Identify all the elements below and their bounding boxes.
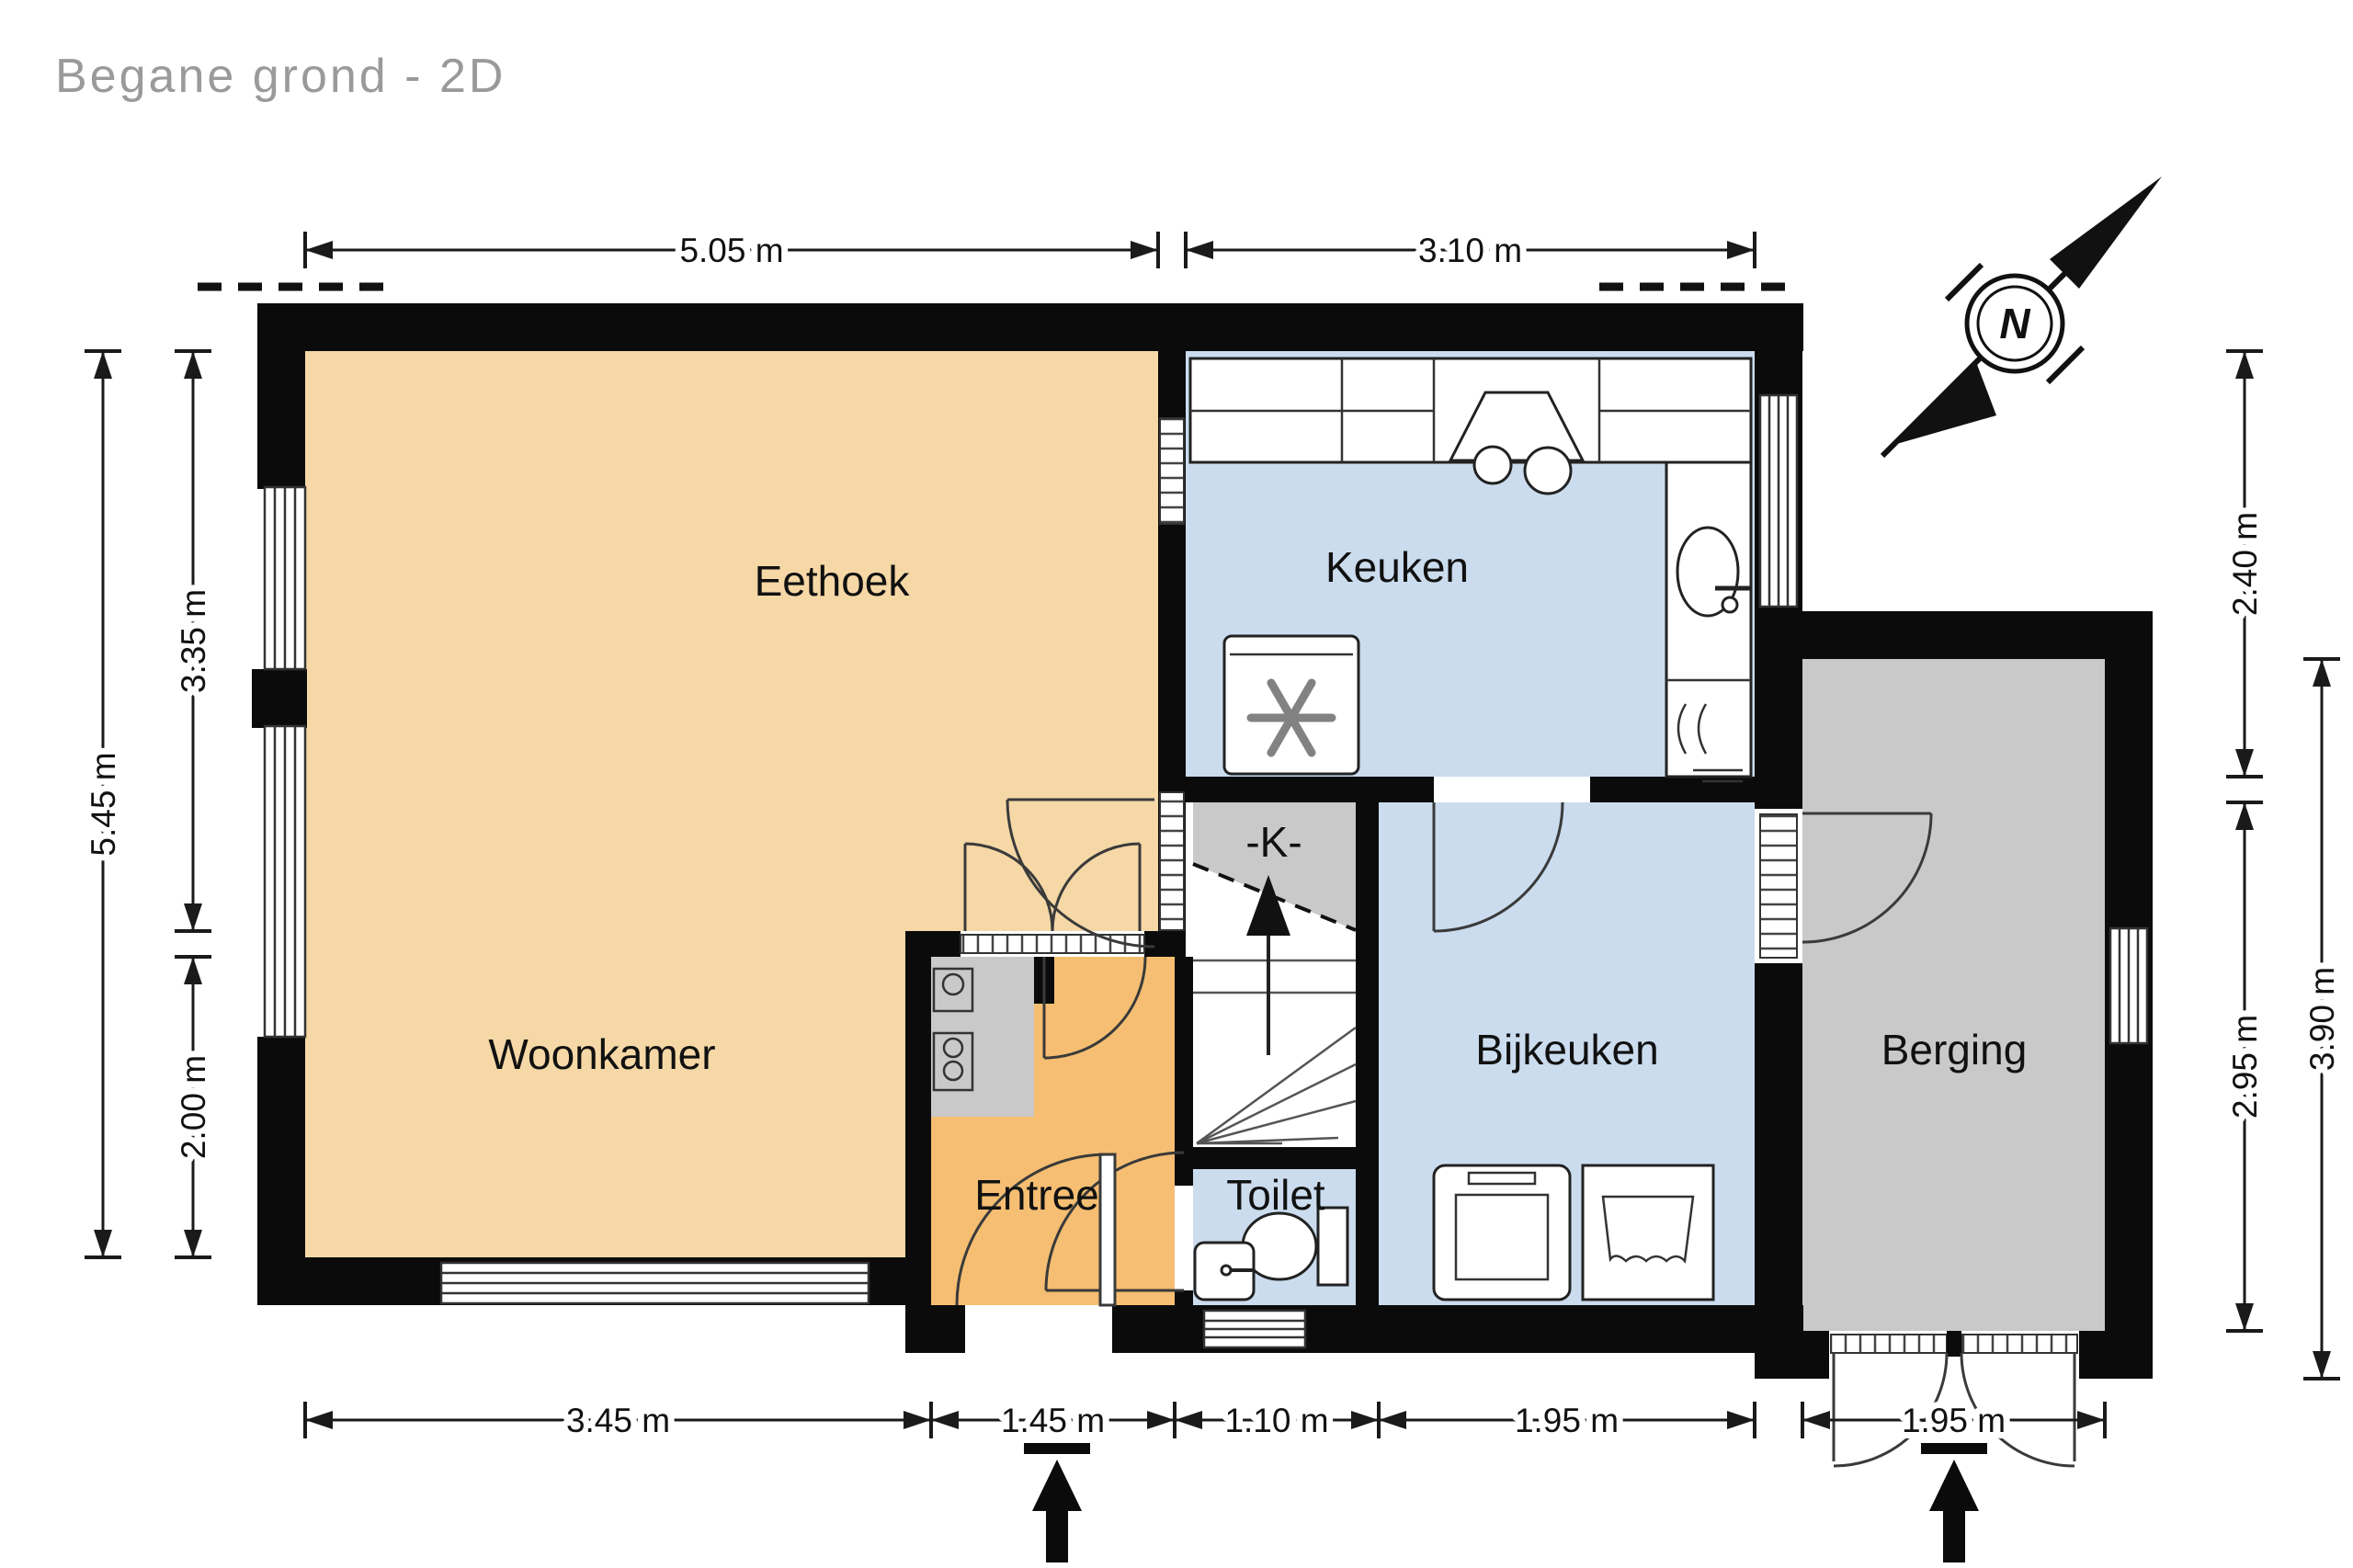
window-keuken-right (1760, 395, 1797, 607)
dimension-label-bottom-1-45: 1.45 m (1001, 1402, 1105, 1439)
fridge-freezer-icon (1224, 636, 1358, 774)
dimension-label-left-5-45: 5.45 m (85, 752, 122, 856)
burner-icon (1474, 447, 1511, 483)
faucet-icon (1722, 597, 1737, 612)
dimension-top-5-05: 5.05 m (305, 232, 1158, 269)
room-label-bijkeuken: Bijkeuken (1475, 1026, 1658, 1074)
compass: N (1882, 176, 2162, 456)
room-label-toilet: Toilet (1226, 1171, 1325, 1219)
dimension-label-right-2-95: 2.95 m (2226, 1015, 2264, 1119)
window-toilet (1204, 1311, 1305, 1347)
page-title: Begane grond - 2D (55, 50, 506, 103)
dimension-label-bottom-1-95-berging: 1.95 m (1902, 1402, 2006, 1439)
dimension-bottom-1-45: 1.45 m (931, 1402, 1175, 1439)
compass-north-label: N (1999, 300, 2030, 347)
burner-icon (1525, 448, 1571, 494)
dimension-label-top-3-10: 3.10 m (1418, 232, 1522, 269)
glass-berging-door-right (1961, 1335, 2077, 1353)
dimension-label-right-2-40: 2.40 m (2226, 512, 2264, 616)
floor-plan-page: Begane grond - 2D (0, 0, 2353, 1568)
room-label-keuken: Keuken (1325, 543, 1469, 591)
dimension-bottom-1-95-berging: 1.95 m (1802, 1402, 2105, 1439)
glass-eethoek-entree (961, 935, 1144, 953)
window-berging-right (2110, 928, 2147, 1043)
dimension-label-bottom-1-95-bijkeuken: 1.95 m (1515, 1402, 1619, 1439)
dimension-right-2-95: 2.95 m (2226, 802, 2264, 1331)
entrance-arrow-front-door (1024, 1443, 1090, 1562)
glass-eethoek-keuken-upper (1160, 418, 1184, 524)
dimension-bottom-1-10: 1.10 m (1175, 1402, 1379, 1439)
entrance-arrow-berging-door (1921, 1443, 1987, 1562)
room-label-kast: -K- (1245, 818, 1302, 866)
room-label-entree: Entree (974, 1171, 1099, 1219)
dimension-label-left-3-35: 3.35 m (175, 589, 212, 693)
dimension-left-3-35: 3.35 m (175, 351, 212, 931)
room-floors (305, 351, 2105, 1331)
toilet-tank (1318, 1208, 1347, 1285)
berging-door-post (1947, 1331, 1961, 1357)
dimension-left-2-00: 2.00 m (175, 957, 212, 1257)
dimension-label-left-2-00: 2.00 m (175, 1055, 212, 1159)
window-woonkamer-bottom (441, 1263, 869, 1303)
dimension-label-top-5-05: 5.05 m (679, 232, 783, 269)
dimension-top-3-10: 3.10 m (1186, 232, 1755, 269)
window-left-upper (265, 487, 305, 669)
dimension-left-5-45: 5.45 m (85, 351, 122, 1257)
dimension-label-bottom-1-10: 1.10 m (1224, 1402, 1328, 1439)
dimension-right-3-90: 3.90 m (2303, 659, 2341, 1379)
dimension-label-bottom-3-45: 3.45 m (566, 1402, 670, 1439)
glass-berging-door-left (1831, 1335, 1947, 1353)
room-label-woonkamer: Woonkamer (488, 1030, 715, 1078)
glass-eethoek-keuken-lower (1160, 792, 1184, 930)
entrance-arrows (1024, 1443, 1987, 1562)
room-label-eethoek: Eethoek (755, 557, 911, 605)
glass-bijkeuken-berging-door (1760, 814, 1797, 958)
dimension-bottom-3-45: 3.45 m (305, 1402, 931, 1439)
washing-machine-icon (1434, 1165, 1570, 1300)
dimension-label-right-3-90: 3.90 m (2303, 967, 2341, 1071)
window-left-lower (265, 726, 305, 1037)
compass-north-needle (2050, 176, 2162, 289)
dimension-bottom-1-95-bijkeuken: 1.95 m (1379, 1402, 1755, 1439)
floor-berging (1802, 659, 2105, 1331)
dimension-right-2-40: 2.40 m (2226, 351, 2264, 777)
room-label-berging: Berging (1881, 1026, 2028, 1074)
laundry-basket-icon (1583, 1165, 1713, 1300)
compass-south-needle (1893, 362, 1996, 445)
